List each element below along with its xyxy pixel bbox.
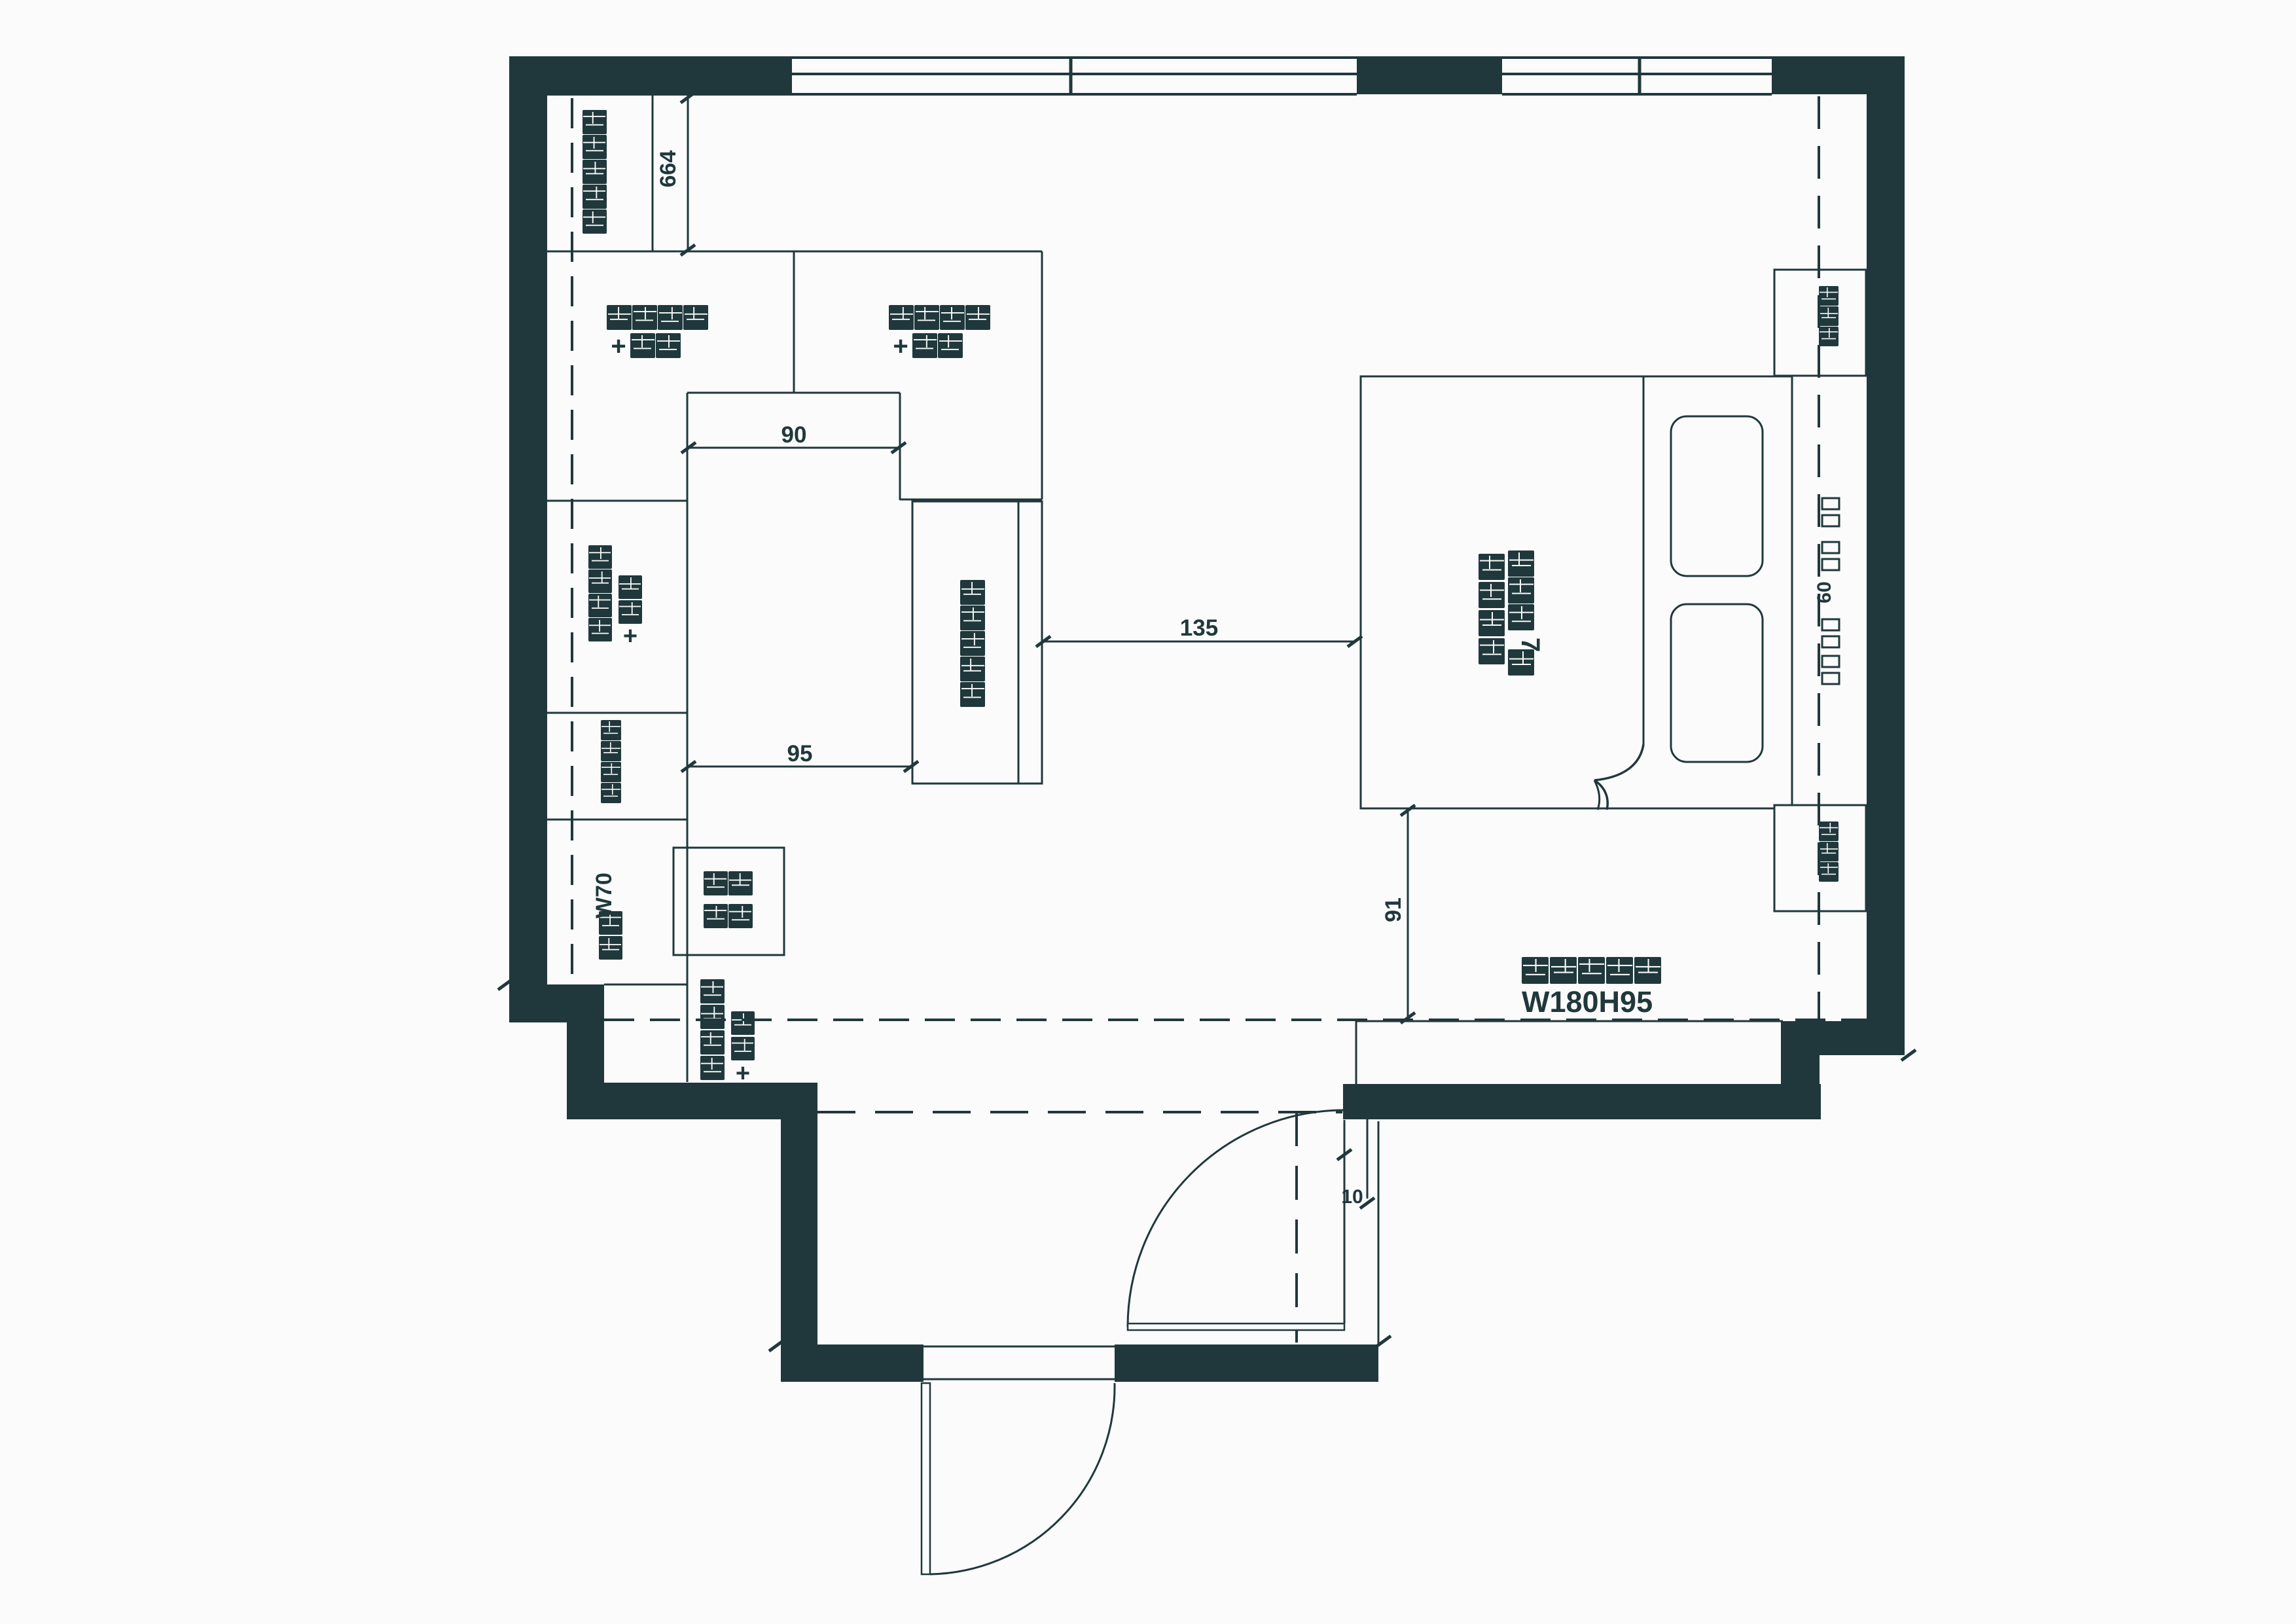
svg-text:95: 95: [787, 741, 813, 767]
svg-text:+: +: [611, 332, 626, 361]
svg-text:+: +: [623, 623, 637, 650]
svg-text:91: 91: [1381, 897, 1406, 922]
svg-text:+: +: [736, 1060, 750, 1087]
svg-text:664: 664: [656, 151, 681, 188]
svg-text:+: +: [893, 332, 908, 361]
svg-text:W70: W70: [592, 873, 617, 918]
svg-text:W180H95: W180H95: [1522, 985, 1653, 1019]
svg-text:135: 135: [1180, 615, 1218, 641]
svg-text:10: 10: [1341, 1186, 1363, 1208]
svg-text:60: 60: [1814, 581, 1835, 603]
svg-text:90: 90: [781, 422, 807, 448]
